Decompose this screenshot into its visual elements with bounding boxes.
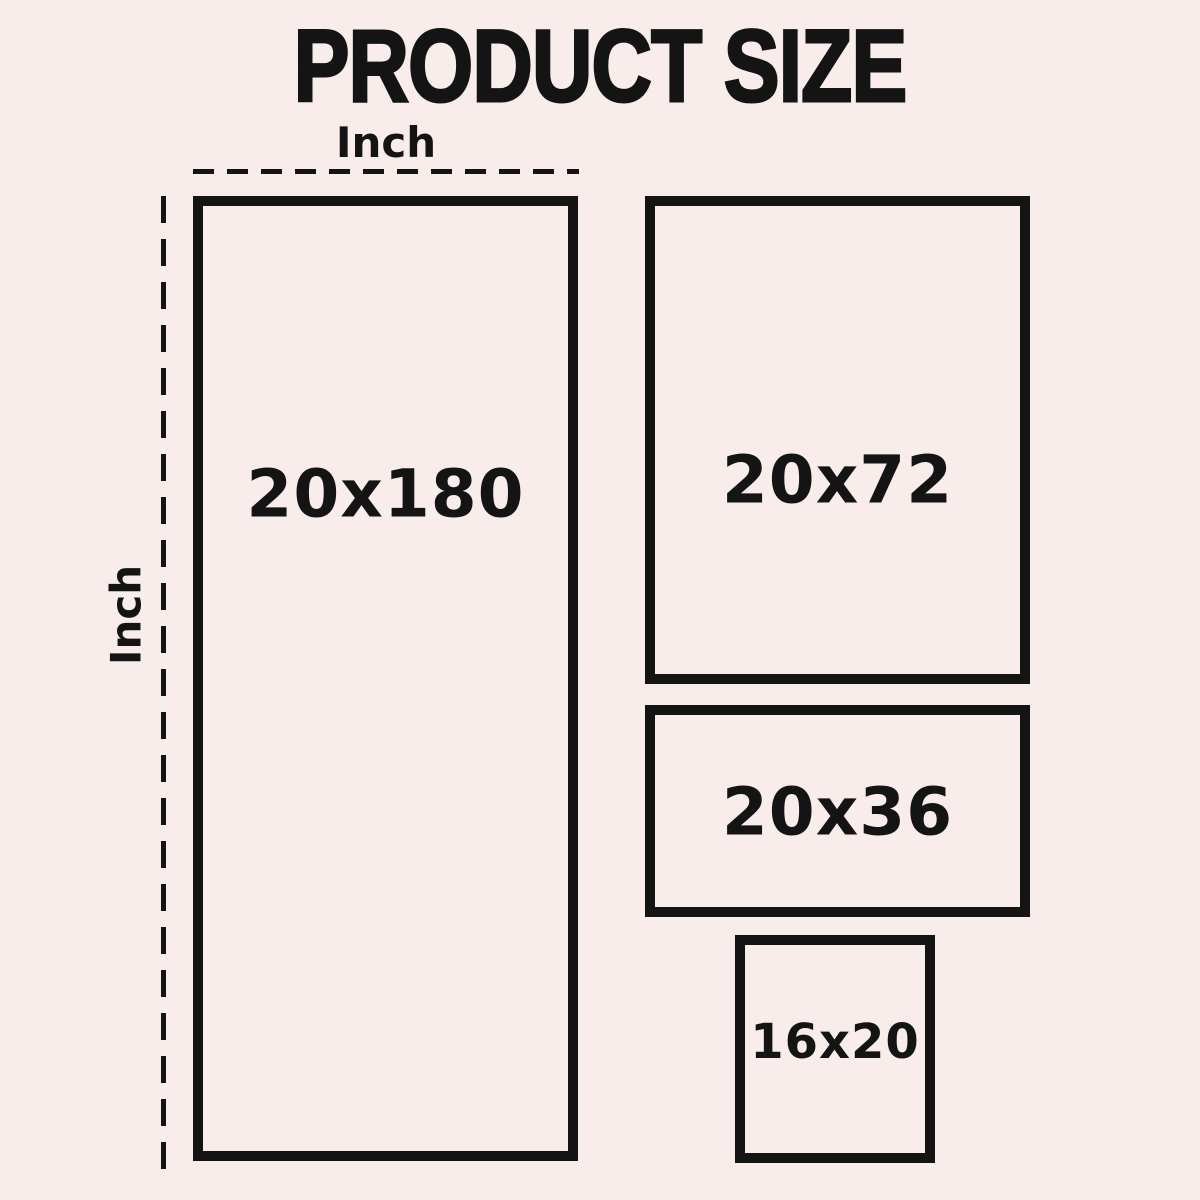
size-box-20x36: 20x36 [645,705,1030,917]
product-size-diagram: PRODUCT SIZE Inch Inch 20x180 20x72 20x3… [0,0,1200,1200]
vertical-dashed-ruler [161,196,166,1182]
top-ruler-unit-label: Inch [193,118,579,167]
size-label-20x72: 20x72 [655,442,1020,519]
size-box-20x72: 20x72 [645,196,1030,684]
horizontal-dashed-ruler [193,169,579,174]
size-box-16x20: 16x20 [735,935,935,1163]
size-box-20x180: 20x180 [193,196,578,1161]
size-label-20x36: 20x36 [655,774,1020,851]
size-label-16x20: 16x20 [745,1014,925,1070]
page-title: PRODUCT SIZE [108,8,1092,125]
left-ruler-unit-label: Inch [102,565,151,665]
size-label-20x180: 20x180 [203,456,568,533]
